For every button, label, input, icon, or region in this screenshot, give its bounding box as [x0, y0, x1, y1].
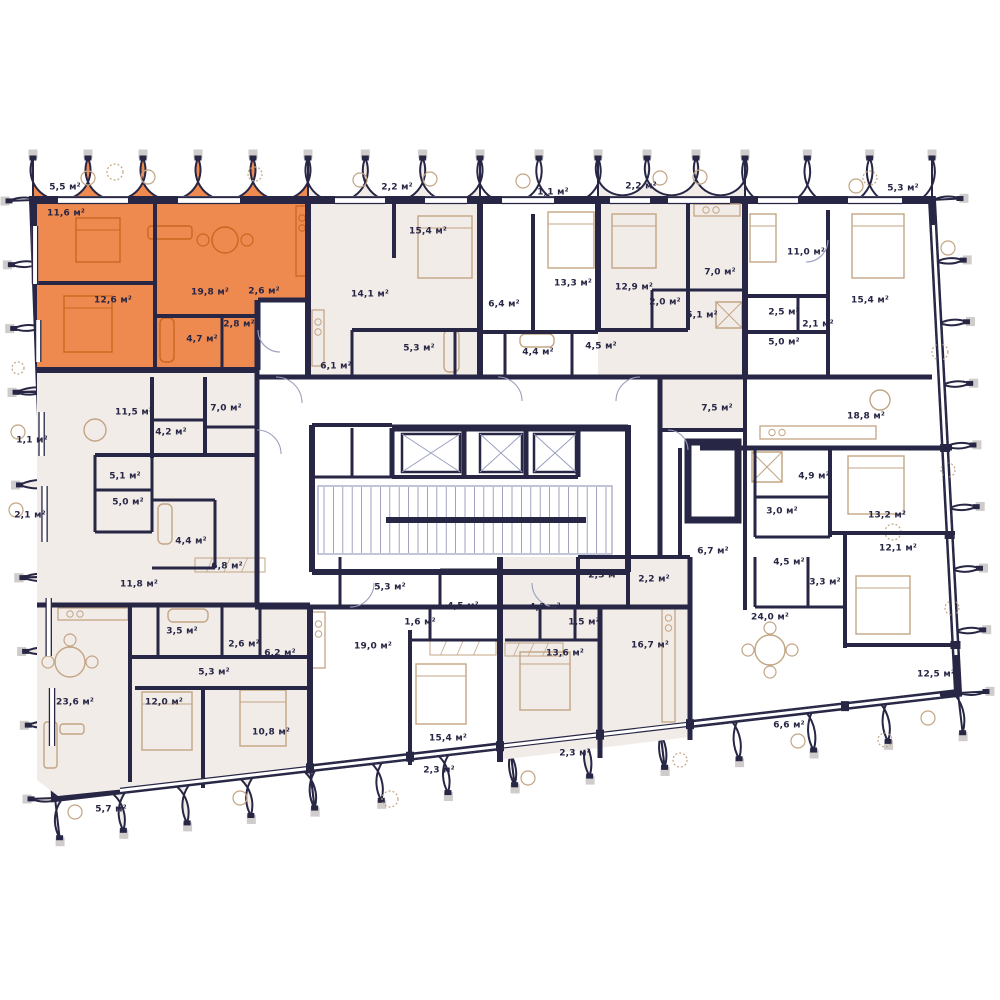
floor-plan-drawing [0, 0, 1000, 1000]
floor-plan: 5,5 м²11,6 м²12,6 м²19,8 м²2,6 м²2,8 м²4… [0, 0, 1000, 1000]
